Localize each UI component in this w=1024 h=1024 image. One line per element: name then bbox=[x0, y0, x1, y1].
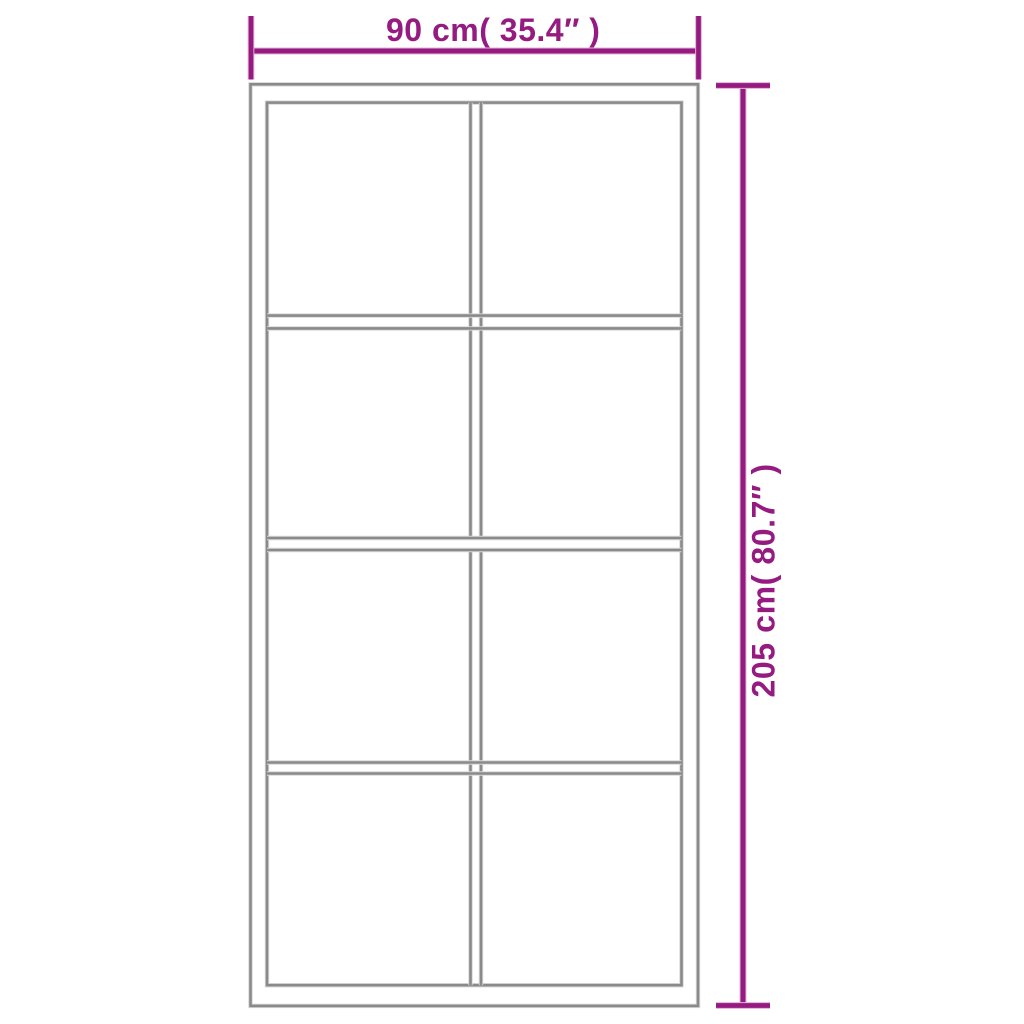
svg-text:90 cm( 35.4″ ): 90 cm( 35.4″ ) bbox=[386, 12, 600, 48]
svg-text:205 cm( 80.7″ ): 205 cm( 80.7″ ) bbox=[746, 463, 782, 697]
